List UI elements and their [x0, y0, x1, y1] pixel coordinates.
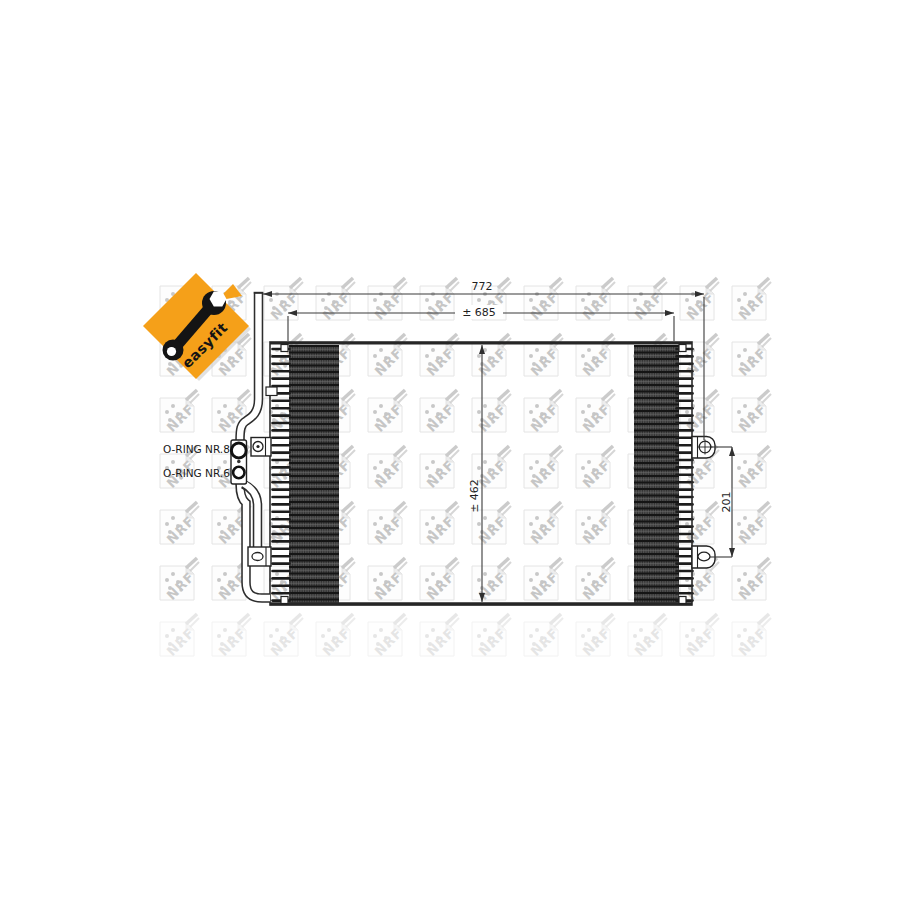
left-lower-bracket [248, 547, 271, 566]
nrf-watermark [420, 278, 459, 323]
nrf-watermark [420, 614, 459, 659]
nrf-watermark [264, 614, 303, 659]
bracket-oval-hole [252, 553, 263, 561]
nrf-watermark [264, 278, 303, 323]
nrf-watermark [576, 334, 615, 379]
nrf-watermark [576, 278, 615, 323]
nrf-watermark [420, 558, 459, 603]
fin-corner-clip [679, 345, 686, 352]
fin-corner-clip [281, 597, 288, 604]
header-clip [266, 387, 277, 396]
nrf-watermark [472, 614, 511, 659]
nrf-watermark [212, 614, 251, 659]
nrf-watermark [524, 614, 563, 659]
nrf-watermark [524, 502, 563, 547]
nrf-watermark [524, 334, 563, 379]
nrf-watermark [628, 278, 667, 323]
product-image: NRF [0, 0, 900, 900]
nrf-watermark [368, 502, 407, 547]
nrf-watermark [576, 446, 615, 491]
nrf-watermark [316, 614, 355, 659]
dim-462-label: ± 462 [468, 479, 481, 513]
nrf-watermark [680, 614, 719, 659]
nrf-watermark [368, 614, 407, 659]
condenser-technical-drawing: NRF [0, 0, 900, 900]
oring-port-8 [231, 443, 246, 458]
nrf-watermark [732, 278, 771, 323]
nrf-watermark [160, 502, 199, 547]
nrf-watermark [160, 390, 199, 435]
nrf-watermark [420, 390, 459, 435]
nrf-watermark [524, 390, 563, 435]
nrf-watermark [732, 446, 771, 491]
nrf-watermark [576, 558, 615, 603]
nrf-watermark [680, 278, 719, 323]
nrf-watermark [576, 614, 615, 659]
nrf-watermark [524, 446, 563, 491]
block-pin [237, 460, 241, 464]
oring-port-6 [233, 467, 244, 478]
tube-ticks-right [677, 349, 693, 601]
nrf-watermark [628, 614, 667, 659]
nrf-watermark [576, 502, 615, 547]
dim-772-label: 772 [472, 280, 493, 293]
nrf-watermark [732, 390, 771, 435]
dim-685-label: ± 685 [462, 306, 496, 319]
nrf-watermark [576, 390, 615, 435]
nrf-watermark [368, 390, 407, 435]
fin-pack-left [289, 345, 339, 603]
nrf-watermark [420, 446, 459, 491]
fin-corner-clip [679, 597, 686, 604]
nrf-watermark [160, 558, 199, 603]
nrf-watermark [420, 502, 459, 547]
nrf-watermark [368, 278, 407, 323]
nrf-watermark [680, 390, 719, 435]
nrf-watermark [732, 558, 771, 603]
oring-nr6-label: O-RING NR.6 [163, 467, 230, 479]
nrf-watermark [420, 334, 459, 379]
nrf-watermark [160, 614, 199, 659]
bracket-oval-hole [698, 552, 710, 561]
dim-201-label: 201 [720, 492, 733, 513]
nrf-watermark [368, 334, 407, 379]
nrf-watermark [524, 278, 563, 323]
nrf-watermark [472, 558, 511, 603]
oring-nr8-label: O-RING NR.8 [163, 443, 230, 455]
nrf-watermark [732, 614, 771, 659]
nrf-watermark [732, 334, 771, 379]
nrf-watermark [316, 278, 355, 323]
nrf-watermark [732, 502, 771, 547]
left-upper-bracket [251, 438, 271, 457]
nrf-watermark [472, 334, 511, 379]
nrf-watermark [524, 558, 563, 603]
nrf-watermark [472, 390, 511, 435]
connector-block [231, 440, 247, 484]
nrf-watermark [368, 558, 407, 603]
fin-corner-clip [281, 345, 288, 352]
nrf-watermark [368, 446, 407, 491]
fin-pack-right [634, 345, 679, 603]
